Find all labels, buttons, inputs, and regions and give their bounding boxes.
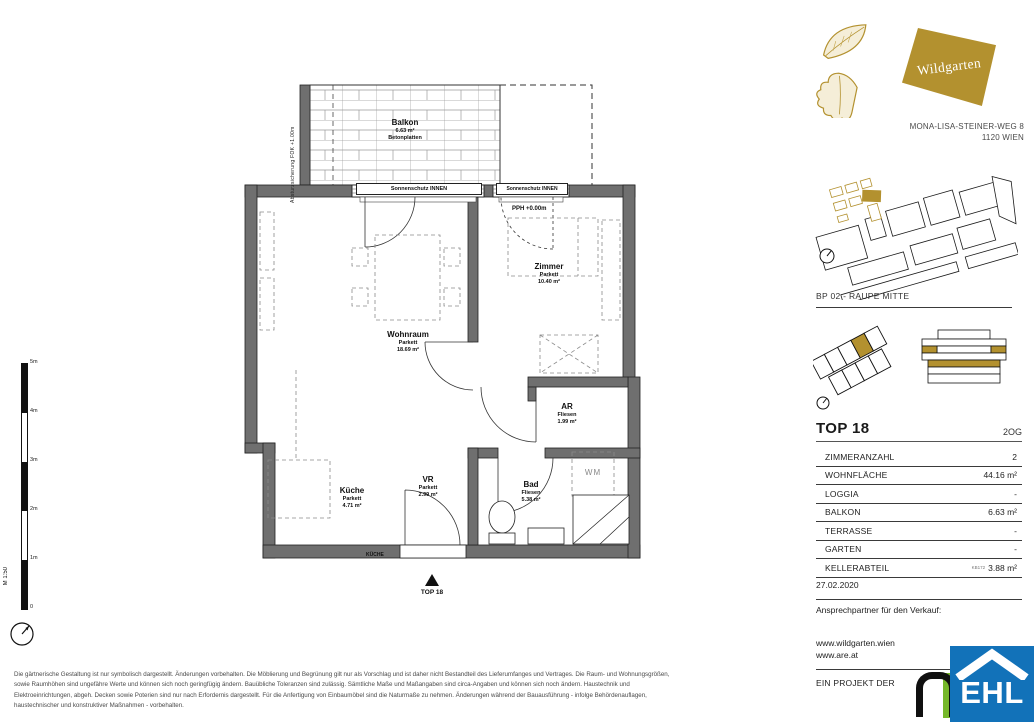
kitchen-counter (268, 460, 330, 518)
floorplan-drawing (240, 80, 650, 610)
balcony-side-wall (300, 85, 310, 185)
scale-tick: 5m (30, 359, 38, 365)
wildgarten-logo-text: Wildgarten (916, 55, 982, 79)
map-bp02-unit (849, 196, 863, 207)
toilet-tank (489, 533, 515, 544)
wall-zimmer-ar (528, 377, 628, 387)
spec-row: BALKON 6.63 m² (816, 504, 1022, 523)
entrance-door-frame (400, 545, 466, 558)
map-bp02-unit (860, 178, 872, 188)
contact-label: Ansprechpartner für den Verkauf: (816, 605, 941, 615)
scale-tick: 1m (30, 555, 38, 561)
chair (444, 288, 460, 306)
railing-note: Absturzsicherung FOK +1.00m (290, 95, 296, 203)
spec-note: KB172 (972, 565, 986, 570)
map-bp02-unit (829, 187, 843, 198)
spec-value: - (1014, 544, 1022, 554)
section-level-highlight (922, 346, 937, 353)
spec-label: GARTEN (816, 544, 1011, 554)
ehl-logo-text: EHL (950, 677, 1034, 708)
disclaimer-line: haustechnischer und konstruktiver Maßnah… (14, 701, 774, 711)
spec-value: 3.88 m² (988, 563, 1022, 573)
sideboard (260, 212, 274, 270)
website-are: www.are.at (816, 649, 895, 661)
neighbor-balcony-outline (500, 85, 592, 185)
level-note: PPH +0.00m (512, 206, 547, 212)
spec-label: BALKON (816, 507, 985, 517)
window-zimmer-sill (499, 197, 563, 202)
scale-tick: 4m (30, 408, 38, 414)
map-building (816, 225, 868, 270)
wall-wohnraum-zimmer (468, 197, 478, 342)
divider (816, 307, 1012, 308)
wall-right-upper (623, 185, 635, 385)
spec-row: TERRASSE - (816, 522, 1022, 541)
leaf-illustration-icon (814, 22, 896, 118)
spec-label: WOHNFLÄCHE (816, 470, 980, 480)
washing-machine-label: WM (585, 468, 601, 478)
dining-table (375, 235, 440, 320)
dresser-cross (540, 335, 598, 373)
chair (352, 288, 368, 306)
spec-value: 2 (1012, 452, 1022, 462)
map-bp02-unit (837, 214, 848, 223)
section-level-highlight (928, 360, 1000, 367)
scale-label: M 1:50 (3, 567, 9, 585)
section-level-highlight (991, 346, 1006, 353)
site-plan-label: BP 02 - RAUPE MITTE (816, 291, 909, 301)
bath-fixtures (489, 495, 629, 544)
plan-date: 27.02.2020 (816, 580, 1022, 600)
spec-value: - (1014, 489, 1022, 499)
disclaimer-text: Die gärtnerische Gestaltung ist nur symb… (14, 670, 774, 712)
spec-label: TERRASSE (816, 526, 1011, 536)
unit-heading: TOP 18 2OG (816, 420, 1022, 442)
sideboard (260, 278, 274, 330)
scale-seg (21, 560, 28, 610)
map-building (957, 219, 996, 250)
section-level (922, 339, 1006, 346)
unit-floor: 2OG (1003, 427, 1022, 437)
spec-label: ZIMMERANZAHL (816, 452, 1009, 462)
floorplan-sheet: Balkon 6.63 m² Betonplatten Absturzsiche… (0, 0, 1034, 722)
map-bp02-unit (833, 200, 847, 211)
sunshade-label-wohnraum: Sonnenschutz INNEN (356, 183, 482, 195)
room-label-wohnraum: Wohnraum Parkett 18.69 m² (387, 330, 429, 354)
map-bp02-unit (845, 182, 859, 193)
ehl-logo: EHL (950, 646, 1034, 722)
entrance-arrow (425, 574, 439, 586)
wall-bad-left (468, 448, 478, 545)
chair (352, 248, 368, 266)
wall-right-lower (628, 377, 640, 558)
websites: www.wildgarten.wien www.are.at (816, 637, 895, 661)
spec-label: KELLERABTEIL (816, 563, 972, 573)
chair (444, 248, 460, 266)
scale-tick: 3m (30, 457, 38, 463)
section-level (937, 346, 991, 353)
disclaimer-line: sowie Raumhöhen sind ungefähre Werte und… (14, 680, 774, 690)
spec-label: LOGGIA (816, 489, 1011, 499)
address-line1: MONA-LISA-STEINER-WEG 8 (824, 121, 1024, 132)
window-wohnraum-sill (360, 197, 476, 202)
wall-left (245, 185, 257, 453)
balcony (300, 85, 592, 185)
map-subject-building (862, 190, 880, 202)
floor-key-diagram (813, 323, 918, 415)
zimmer-balcony-door-swing (501, 197, 553, 249)
washbasin (528, 528, 564, 544)
section-level (928, 367, 1000, 374)
spec-value: 44.16 m² (983, 470, 1022, 480)
map-building (886, 202, 926, 236)
balcony-label: Balkon 6.63 m² Betonplatten (388, 118, 422, 142)
room-label-ar: AR Fliesen 1.99 m² (558, 402, 577, 426)
unit-title: TOP 18 (816, 420, 870, 437)
toilet (489, 501, 515, 533)
room-label-zimmer: Zimmer Parkett 10.40 m² (535, 262, 564, 286)
zimmer-door-swing (425, 342, 473, 390)
project-of-label: EIN PROJEKT DER (816, 678, 895, 688)
spec-row: LOGGIA - (816, 485, 1022, 504)
spec-value: - (1014, 526, 1022, 536)
north-arrow-icon (8, 620, 36, 648)
room-label-kueche: Küche Parkett 4.71 m² (340, 486, 364, 510)
wildgarten-logo: Wildgarten (902, 28, 996, 106)
wardrobe (602, 220, 620, 320)
balcony-door-swing (365, 197, 415, 247)
scale-seg (21, 511, 28, 560)
section-level (938, 330, 990, 339)
spec-row: ZIMMERANZAHL 2 (816, 448, 1022, 467)
scale-seg (21, 413, 28, 462)
scale-tick: 0 (30, 604, 33, 610)
section-level (922, 353, 1006, 360)
map-building (910, 234, 958, 265)
spec-row: KELLERABTEIL KB172 3.88 m² (816, 559, 1022, 578)
entrance-label: TOP 18 (421, 589, 443, 597)
scale-seg (21, 363, 28, 413)
spec-row: GARTEN - (816, 541, 1022, 560)
wall-bad-top-b (545, 448, 640, 458)
section-key-diagram (916, 326, 1012, 388)
map-building (923, 190, 960, 225)
website-wildgarten: www.wildgarten.wien (816, 637, 895, 649)
scale-bar (21, 363, 28, 610)
kitchen-note: KÜCHE (366, 552, 384, 558)
spec-table: ZIMMERANZAHL 2 WOHNFLÄCHE 44.16 m² LOGGI… (816, 448, 1022, 578)
disclaimer-line: Die gärtnerische Gestaltung ist nur symb… (14, 670, 774, 680)
furniture (260, 212, 620, 518)
site-map (813, 140, 1018, 300)
doors (365, 197, 553, 558)
disclaimer-line: Elektroeinrichtungen, abgeh. Decken sowi… (14, 691, 774, 701)
scale-seg (21, 462, 28, 511)
spec-value: 6.63 m² (988, 507, 1022, 517)
room-label-bad: Bad Fliesen 5.38 m² (522, 480, 541, 504)
section-level (928, 374, 1000, 383)
room-label-vr: VR Parkett 2.99 m² (419, 475, 438, 499)
wall-ar-stub (528, 387, 536, 401)
sunshade-label-zimmer: Sonnenschutz INNEN (496, 183, 568, 195)
scale-tick: 2m (30, 506, 38, 512)
spec-row: WOHNFLÄCHE 44.16 m² (816, 467, 1022, 486)
